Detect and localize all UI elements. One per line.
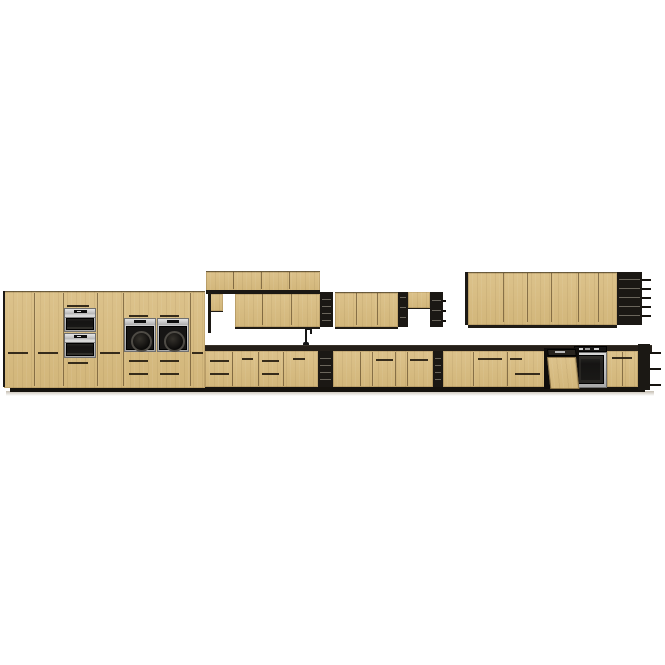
open-shelf-base-1-shelf-0: [320, 358, 331, 359]
door-seam-13: [527, 273, 528, 322]
compact-oven-left-dial-window: [131, 331, 152, 352]
door-handle-groove-22: [515, 373, 540, 375]
base-cabinet-right: [443, 351, 545, 387]
large-cabinet-side-panel: [465, 272, 468, 325]
open-shelf-wall-end-shelf-edge-3: [642, 306, 651, 308]
door-seam-22: [395, 352, 396, 386]
open-shelf-base-2: [433, 351, 443, 387]
door-seam-2: [97, 293, 98, 386]
built-in-oven-base-door-glass: [577, 355, 604, 384]
open-shelf-upper-1-shelf-0: [322, 299, 331, 300]
door-seam-0: [34, 293, 35, 386]
open-shelf-base-2-shelf-2: [435, 372, 441, 373]
open-shelf-upper-1-shelf-1: [322, 306, 331, 307]
door-handle-groove-8: [129, 360, 148, 362]
door-handle-groove-19: [410, 359, 428, 361]
door-handle-groove-18: [376, 359, 393, 361]
open-shelf-base-1-shelf-1: [320, 365, 331, 366]
open-shelf-wall-end-shelf-edge-2: [642, 297, 651, 299]
open-shelf-wall-end-shelf-1: [619, 288, 640, 289]
dishwasher-open-door-panel: [547, 357, 579, 389]
built-in-oven-lower-display-tick: [77, 336, 81, 337]
door-handle-groove-6: [129, 315, 148, 317]
open-shelf-wall-end-shelf-4: [619, 315, 640, 316]
door-seam-17: [232, 352, 233, 386]
wall-mid-cabinet: [335, 292, 398, 329]
open-shelf-wall-end-shelf-edge-4: [642, 315, 651, 317]
door-handle-groove-1: [38, 352, 58, 354]
door-seam-5: [233, 272, 234, 289]
door-handle-groove-13: [210, 373, 229, 375]
kitchen-product-image: [0, 0, 665, 665]
wall-second-row: [235, 293, 320, 329]
built-in-oven-lower-door-glass: [66, 343, 94, 356]
door-handle-groove-9: [160, 360, 179, 362]
wall-half-cabinet-left: [210, 294, 223, 312]
sink-faucet-tip: [310, 330, 312, 334]
open-shelf-upper-3-shelf-0: [432, 300, 441, 301]
open-shelf-upper-1-shelf-2: [322, 313, 331, 314]
open-shelf-upper-2-shelf-2: [400, 317, 406, 318]
wall-side-panel: [208, 294, 211, 333]
open-shelf-upper-2-shelf-1: [400, 307, 406, 308]
door-handle-groove-10: [129, 373, 148, 375]
open-shelf-upper-1: [320, 292, 333, 327]
door-seam-14: [551, 273, 552, 322]
dishwasher-open-control-tick: [555, 351, 565, 353]
compact-oven-right-display: [167, 320, 179, 323]
open-shelf-upper-3-shelf-edge-2: [443, 320, 446, 322]
open-shelf-base-1-shelf-2: [320, 372, 331, 373]
door-seam-16: [598, 273, 599, 322]
open-shelf-base-1: [318, 351, 333, 387]
door-handle-groove-2: [100, 352, 120, 354]
door-seam-8: [262, 294, 263, 325]
door-handle-groove-3: [192, 352, 203, 354]
open-shelf-wall-end-shelf-edge-1: [642, 288, 651, 290]
base-cabinet-mid: [333, 351, 433, 387]
door-seam-25: [507, 352, 508, 386]
door-handle-groove-17: [293, 358, 305, 360]
door-handle-groove-16: [262, 373, 279, 375]
open-shelf-base-end-shelf-edge-1: [650, 368, 661, 370]
compact-oven-left-display: [134, 320, 146, 323]
door-handle-groove-20: [478, 358, 502, 360]
door-seam-24: [473, 352, 474, 386]
base-cabinet-left: [205, 351, 318, 387]
wall-top-row: [206, 271, 320, 291]
open-shelf-upper-2-shelf-0: [400, 297, 406, 298]
open-shelf-wall-end-shelf-edge-0: [642, 279, 651, 281]
door-seam-6: [261, 272, 262, 289]
open-shelf-base-2-shelf-3: [435, 379, 441, 380]
door-seam-21: [372, 352, 373, 386]
door-handle-groove-14: [242, 358, 253, 360]
door-seam-4: [190, 293, 191, 386]
door-seam-15: [578, 273, 579, 322]
door-seam-9: [291, 294, 292, 325]
built-in-oven-upper-display-tick: [77, 311, 81, 312]
open-shelf-upper-3-shelf-2: [432, 320, 441, 321]
open-shelf-base-2-shelf-1: [435, 365, 441, 366]
door-seam-19: [283, 352, 284, 386]
door-handle-groove-0: [8, 352, 28, 354]
built-in-oven-base-button-2: [594, 348, 599, 350]
open-shelf-wall-end-shelf-3: [619, 306, 640, 307]
wall-cabinet-large-right: [468, 272, 617, 328]
wall-half-cabinet-right: [408, 292, 430, 309]
open-shelf-wall-end-shelf-0: [619, 279, 640, 280]
door-handle-groove-23: [612, 357, 632, 359]
door-seam-18: [258, 352, 259, 386]
open-shelf-upper-3-shelf-1: [432, 310, 441, 311]
door-seam-10: [356, 293, 357, 325]
open-shelf-base-end-shelf-edge-0: [650, 352, 661, 354]
door-seam-12: [503, 273, 504, 322]
open-shelf-upper-3-shelf-edge-1: [443, 310, 446, 312]
open-shelf-base-2-shelf-0: [435, 358, 441, 359]
built-in-oven-base-button-1: [585, 348, 590, 350]
door-handle-groove-21: [510, 358, 522, 360]
wall-top-row-underside: [206, 290, 320, 294]
sink-faucet-base: [303, 342, 309, 345]
open-shelf-base-end: [638, 344, 650, 390]
door-handle-groove-11: [160, 373, 179, 375]
door-handle-groove-4: [67, 305, 89, 307]
door-seam-7: [289, 272, 290, 289]
door-handle-groove-15: [262, 360, 279, 362]
door-handle-groove-12: [210, 360, 229, 362]
door-seam-20: [360, 352, 361, 386]
door-seam-23: [407, 352, 408, 386]
compact-oven-right-dial-window: [164, 331, 185, 352]
open-shelf-base-1-shelf-3: [320, 379, 331, 380]
door-handle-groove-5: [68, 362, 88, 364]
open-shelf-wall-end-shelf-2: [619, 297, 640, 298]
open-shelf-base-end-shelf-edge-2: [650, 384, 661, 386]
door-handle-groove-7: [160, 315, 179, 317]
built-in-oven-upper-door-glass: [66, 318, 94, 330]
door-seam-11: [377, 293, 378, 325]
open-shelf-upper-3-shelf-edge-0: [443, 300, 446, 302]
open-shelf-upper-1-shelf-3: [322, 320, 331, 321]
kitchen-scene: [0, 0, 665, 665]
tall-left-side-panel: [3, 291, 5, 387]
